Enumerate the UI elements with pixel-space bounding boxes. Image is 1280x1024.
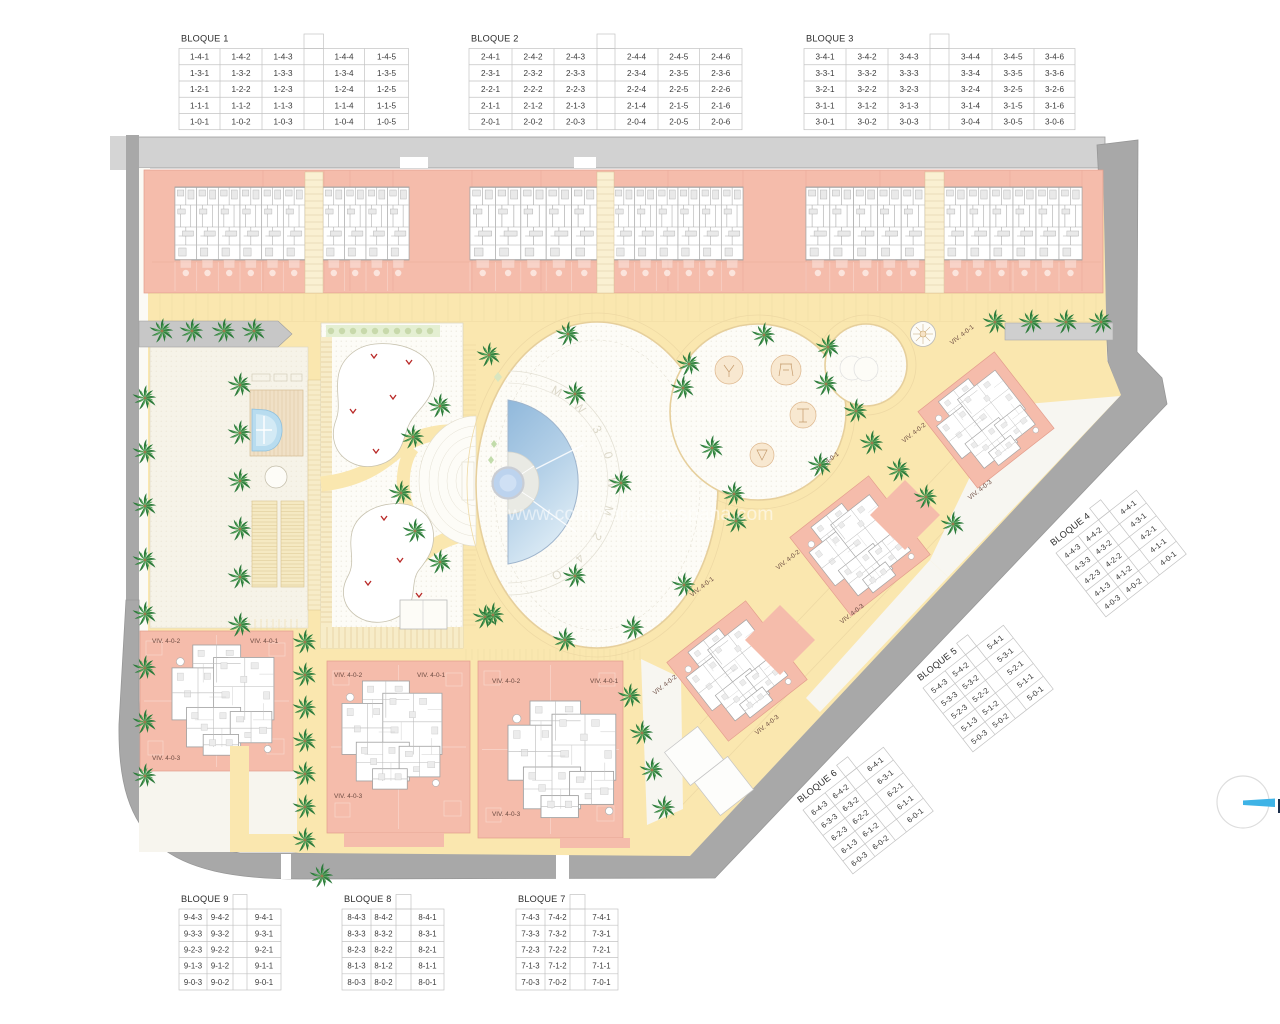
- svg-text:9-2-2: 9-2-2: [211, 946, 229, 955]
- svg-text:1-2-1: 1-2-1: [190, 85, 210, 94]
- svg-text:1-0-2: 1-0-2: [231, 118, 251, 127]
- svg-text:2-4-2: 2-4-2: [523, 53, 543, 62]
- svg-text:BLOQUE 3: BLOQUE 3: [806, 34, 854, 44]
- svg-text:1-2-3: 1-2-3: [273, 85, 293, 94]
- svg-text:2-0-3: 2-0-3: [566, 118, 586, 127]
- svg-text:2-3-1: 2-3-1: [481, 69, 501, 78]
- svg-text:9-4-3: 9-4-3: [184, 913, 202, 922]
- svg-text:3-1-2: 3-1-2: [857, 101, 877, 110]
- svg-text:2-2-5: 2-2-5: [669, 85, 689, 94]
- svg-text:7-3-3: 7-3-3: [521, 929, 539, 938]
- svg-text:7-1-2: 7-1-2: [548, 962, 566, 971]
- svg-text:1-4-4: 1-4-4: [334, 53, 354, 62]
- svg-text:1-0-5: 1-0-5: [377, 118, 397, 127]
- svg-text:3-2-1: 3-2-1: [815, 85, 835, 94]
- svg-text:1-3-4: 1-3-4: [334, 69, 354, 78]
- svg-text:2-3-6: 2-3-6: [711, 69, 731, 78]
- svg-text:8-3-1: 8-3-1: [418, 929, 436, 938]
- svg-text:7-3-1: 7-3-1: [592, 929, 610, 938]
- svg-text:www.comprarcasaespana.com: www.comprarcasaespana.com: [507, 503, 774, 525]
- svg-text:VIV. 4-0-2: VIV. 4-0-2: [492, 678, 521, 685]
- svg-text:1-4-2: 1-4-2: [231, 53, 251, 62]
- svg-text:1-0-1: 1-0-1: [190, 118, 210, 127]
- svg-text:8-3-2: 8-3-2: [374, 929, 392, 938]
- svg-text:7-1-3: 7-1-3: [521, 962, 539, 971]
- svg-text:1-1-2: 1-1-2: [231, 101, 251, 110]
- svg-text:3-1-1: 3-1-1: [815, 101, 835, 110]
- svg-text:7-4-2: 7-4-2: [548, 913, 566, 922]
- svg-text:3-3-3: 3-3-3: [899, 69, 919, 78]
- svg-text:3-1-3: 3-1-3: [899, 101, 919, 110]
- svg-text:7-3-2: 7-3-2: [548, 929, 566, 938]
- svg-text:9-1-3: 9-1-3: [184, 962, 202, 971]
- svg-text:3-3-4: 3-3-4: [961, 69, 981, 78]
- svg-text:9-1-2: 9-1-2: [211, 962, 229, 971]
- svg-text:3-2-4: 3-2-4: [961, 85, 981, 94]
- svg-text:2-1-2: 2-1-2: [523, 101, 543, 110]
- svg-text:8-3-3: 8-3-3: [347, 929, 365, 938]
- svg-text:1-3-3: 1-3-3: [273, 69, 293, 78]
- svg-text:3-2-2: 3-2-2: [857, 85, 877, 94]
- svg-text:9-4-2: 9-4-2: [211, 913, 229, 922]
- svg-text:9-0-3: 9-0-3: [184, 978, 202, 987]
- svg-text:1-4-3: 1-4-3: [273, 53, 293, 62]
- svg-text:1-4-1: 1-4-1: [190, 53, 210, 62]
- svg-text:1-3-5: 1-3-5: [377, 69, 397, 78]
- svg-text:3-0-3: 3-0-3: [899, 118, 919, 127]
- svg-text:2-2-2: 2-2-2: [523, 85, 543, 94]
- svg-text:BLOQUE 9: BLOQUE 9: [181, 894, 229, 904]
- svg-text:1-1-1: 1-1-1: [190, 101, 210, 110]
- svg-text:2-1-5: 2-1-5: [669, 101, 689, 110]
- svg-text:3-4-4: 3-4-4: [961, 53, 981, 62]
- svg-text:3-4-3: 3-4-3: [899, 53, 919, 62]
- svg-text:2-4-3: 2-4-3: [566, 53, 586, 62]
- svg-text:2-4-6: 2-4-6: [711, 53, 731, 62]
- svg-text:9-4-1: 9-4-1: [255, 913, 273, 922]
- svg-text:VIV. 4-0-1: VIV. 4-0-1: [417, 672, 446, 679]
- svg-text:3-0-5: 3-0-5: [1003, 118, 1023, 127]
- svg-text:3-1-6: 3-1-6: [1045, 101, 1065, 110]
- svg-text:VIV. 4-0-3: VIV. 4-0-3: [152, 755, 181, 762]
- svg-text:1-2-4: 1-2-4: [334, 85, 354, 94]
- svg-text:7-0-1: 7-0-1: [592, 978, 610, 987]
- svg-text:2-2-4: 2-2-4: [627, 85, 647, 94]
- svg-text:7-2-3: 7-2-3: [521, 946, 539, 955]
- svg-text:3-3-1: 3-3-1: [815, 69, 835, 78]
- svg-text:2-1-4: 2-1-4: [627, 101, 647, 110]
- svg-text:9-3-1: 9-3-1: [255, 929, 273, 938]
- svg-text:1-2-2: 1-2-2: [231, 85, 251, 94]
- svg-text:7-4-1: 7-4-1: [592, 913, 610, 922]
- svg-text:BLOQUE 1: BLOQUE 1: [181, 34, 229, 44]
- svg-text:3-3-6: 3-3-6: [1045, 69, 1065, 78]
- svg-text:2-3-4: 2-3-4: [627, 69, 647, 78]
- svg-text:BLOQUE 7: BLOQUE 7: [518, 894, 566, 904]
- svg-text:2-3-2: 2-3-2: [523, 69, 543, 78]
- svg-text:9-1-1: 9-1-1: [255, 962, 273, 971]
- svg-text:1-2-5: 1-2-5: [377, 85, 397, 94]
- svg-text:3-4-2: 3-4-2: [857, 53, 877, 62]
- svg-text:VIV. 4-0-1: VIV. 4-0-1: [590, 678, 619, 685]
- svg-text:7-2-2: 7-2-2: [548, 946, 566, 955]
- svg-text:7-4-3: 7-4-3: [521, 913, 539, 922]
- svg-text:2-0-1: 2-0-1: [481, 118, 501, 127]
- svg-text:BLOQUE 2: BLOQUE 2: [471, 34, 519, 44]
- svg-text:7-0-3: 7-0-3: [521, 978, 539, 987]
- svg-text:9-0-2: 9-0-2: [211, 978, 229, 987]
- svg-text:1-4-5: 1-4-5: [377, 53, 397, 62]
- svg-text:2-1-3: 2-1-3: [566, 101, 586, 110]
- svg-text:3-4-6: 3-4-6: [1045, 53, 1065, 62]
- svg-text:1-1-5: 1-1-5: [377, 101, 397, 110]
- svg-text:8-0-1: 8-0-1: [418, 978, 436, 987]
- svg-text:8-1-2: 8-1-2: [374, 962, 392, 971]
- svg-text:2-1-1: 2-1-1: [481, 101, 501, 110]
- svg-text:2-2-3: 2-2-3: [566, 85, 586, 94]
- svg-text:VIV. 4-0-3: VIV. 4-0-3: [334, 793, 363, 800]
- svg-text:VIV. 4-0-1: VIV. 4-0-1: [250, 638, 279, 645]
- svg-text:2-3-5: 2-3-5: [669, 69, 689, 78]
- svg-text:3-3-2: 3-3-2: [857, 69, 877, 78]
- svg-text:2-3-3: 2-3-3: [566, 69, 586, 78]
- svg-text:8-0-2: 8-0-2: [374, 978, 392, 987]
- svg-text:8-4-2: 8-4-2: [374, 913, 392, 922]
- svg-text:VIV. 4-0-3: VIV. 4-0-3: [492, 811, 521, 818]
- svg-text:7-1-1: 7-1-1: [592, 962, 610, 971]
- svg-text:3-0-1: 3-0-1: [815, 118, 835, 127]
- svg-text:3-2-6: 3-2-6: [1045, 85, 1065, 94]
- svg-text:7-0-2: 7-0-2: [548, 978, 566, 987]
- svg-text:8-2-2: 8-2-2: [374, 946, 392, 955]
- svg-text:3-0-6: 3-0-6: [1045, 118, 1065, 127]
- svg-text:3-4-5: 3-4-5: [1003, 53, 1023, 62]
- svg-text:3-2-3: 3-2-3: [899, 85, 919, 94]
- svg-text:1-1-4: 1-1-4: [334, 101, 354, 110]
- svg-text:3-4-1: 3-4-1: [815, 53, 835, 62]
- svg-text:2-2-1: 2-2-1: [481, 85, 501, 94]
- svg-text:3-0-4: 3-0-4: [961, 118, 981, 127]
- svg-text:2-0-6: 2-0-6: [711, 118, 731, 127]
- svg-text:2-4-4: 2-4-4: [627, 53, 647, 62]
- svg-text:3-2-5: 3-2-5: [1003, 85, 1023, 94]
- svg-text:1-0-4: 1-0-4: [334, 118, 354, 127]
- svg-text:3-1-5: 3-1-5: [1003, 101, 1023, 110]
- svg-text:7-2-1: 7-2-1: [592, 946, 610, 955]
- svg-text:3-1-4: 3-1-4: [961, 101, 981, 110]
- svg-text:2-2-6: 2-2-6: [711, 85, 731, 94]
- svg-text:2-4-5: 2-4-5: [669, 53, 689, 62]
- svg-text:8-1-3: 8-1-3: [347, 962, 365, 971]
- svg-text:3-3-5: 3-3-5: [1003, 69, 1023, 78]
- svg-text:1-1-3: 1-1-3: [273, 101, 293, 110]
- svg-text:3-0-2: 3-0-2: [857, 118, 877, 127]
- svg-text:8-4-3: 8-4-3: [347, 913, 365, 922]
- svg-text:1-3-2: 1-3-2: [231, 69, 251, 78]
- svg-text:9-3-3: 9-3-3: [184, 929, 202, 938]
- svg-text:2-0-4: 2-0-4: [627, 118, 647, 127]
- svg-text:8-0-3: 8-0-3: [347, 978, 365, 987]
- svg-text:9-2-1: 9-2-1: [255, 946, 273, 955]
- svg-text:9-2-3: 9-2-3: [184, 946, 202, 955]
- svg-text:1-0-3: 1-0-3: [273, 118, 293, 127]
- svg-text:8-4-1: 8-4-1: [418, 913, 436, 922]
- svg-text:1-3-1: 1-3-1: [190, 69, 210, 78]
- svg-text:2-4-1: 2-4-1: [481, 53, 501, 62]
- svg-text:8-2-3: 8-2-3: [347, 946, 365, 955]
- svg-text:2-1-6: 2-1-6: [711, 101, 731, 110]
- svg-text:2-0-5: 2-0-5: [669, 118, 689, 127]
- svg-text:VIV. 4-0-2: VIV. 4-0-2: [334, 672, 363, 679]
- svg-text:9-0-1: 9-0-1: [255, 978, 273, 987]
- svg-text:BLOQUE 8: BLOQUE 8: [344, 894, 392, 904]
- svg-text:8-1-1: 8-1-1: [418, 962, 436, 971]
- svg-text:VIV. 4-0-2: VIV. 4-0-2: [152, 638, 181, 645]
- svg-text:8-2-1: 8-2-1: [418, 946, 436, 955]
- svg-text:9-3-2: 9-3-2: [211, 929, 229, 938]
- svg-text:2-0-2: 2-0-2: [523, 118, 543, 127]
